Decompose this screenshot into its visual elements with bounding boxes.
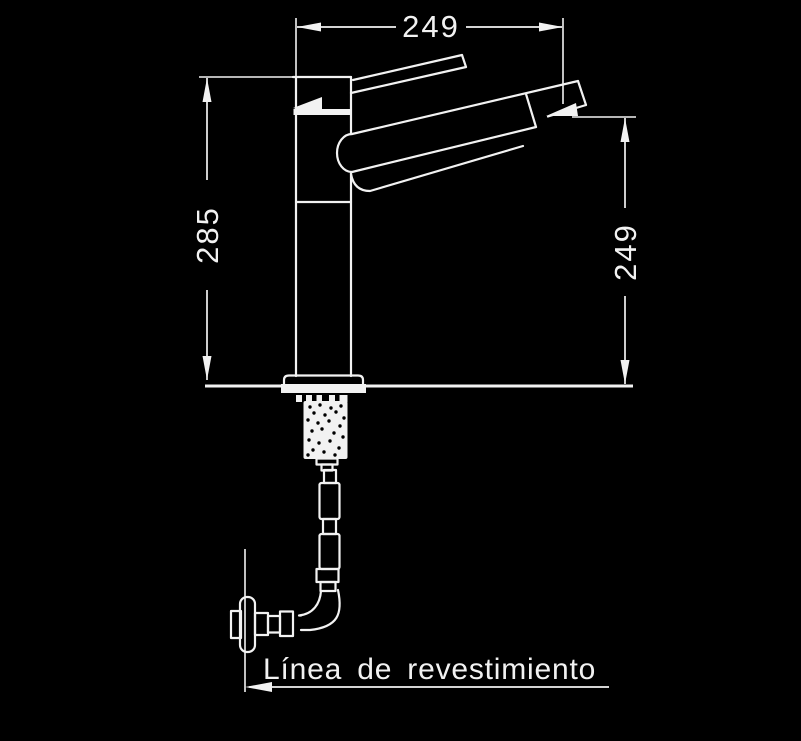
arrowhead-down-icon: [621, 360, 630, 384]
hose-tube-upper: [320, 483, 340, 519]
mounting-shank: [304, 401, 348, 471]
spout-underside-line: [351, 146, 523, 191]
leader-arrowhead-icon: [245, 682, 272, 692]
faucet-lever-handle: [351, 55, 466, 93]
dimension-top-label: 249: [402, 9, 460, 44]
shank-body: [304, 401, 348, 459]
arrowhead-up-icon: [203, 78, 212, 102]
dimension-left-label: 285: [190, 206, 225, 264]
covering-line-label: Línea de revestimiento: [263, 653, 596, 686]
elbow-inner-curve: [299, 591, 321, 616]
fitting-nut-outer: [280, 612, 293, 637]
spout-top-edge: [352, 81, 578, 134]
mounting-tab: [306, 395, 312, 402]
mounting-tab: [329, 395, 335, 402]
fitting-coupling: [268, 616, 280, 633]
lever-bottom-edge: [351, 67, 466, 93]
hose-nut: [317, 569, 339, 582]
hose-collar: [324, 470, 336, 483]
faucet-body: [293, 77, 352, 376]
spout-back-cap: [337, 134, 352, 172]
mounting-tab: [317, 395, 323, 402]
lever-top-edge: [353, 55, 462, 80]
spray-head-seam: [526, 94, 536, 127]
hose-tube-lower: [320, 534, 340, 569]
spray-outlet-wedge: [546, 103, 578, 116]
dimension-right-label: 249: [608, 223, 643, 281]
dimension-top-width: 249: [296, 9, 563, 104]
covering-line-annotation: Línea de revestimiento: [245, 653, 609, 692]
faucet-technical-drawing: 249 285 249: [0, 0, 801, 741]
faucet-base: [205, 376, 633, 403]
fitting-nut-inner: [255, 613, 268, 635]
spray-head-end-face: [578, 81, 586, 105]
hose-stub: [321, 582, 336, 591]
dimension-left-height: 285: [190, 77, 352, 380]
arrowhead-down-icon: [203, 356, 212, 380]
arrowhead-right-icon: [539, 23, 563, 32]
mounting-tab: [340, 395, 348, 402]
wall-escutcheon: [240, 597, 255, 652]
faucet-spout: [337, 81, 586, 191]
drawing-canvas: 249 285 249: [0, 0, 801, 741]
mounting-tab: [296, 395, 302, 402]
arrowhead-up-icon: [621, 118, 630, 142]
arrowhead-left-icon: [297, 23, 321, 32]
hose-coupling: [323, 519, 336, 534]
dimension-right-height: 249: [572, 117, 643, 384]
supply-hose: [299, 470, 340, 630]
lever-tip-cap: [462, 55, 466, 67]
